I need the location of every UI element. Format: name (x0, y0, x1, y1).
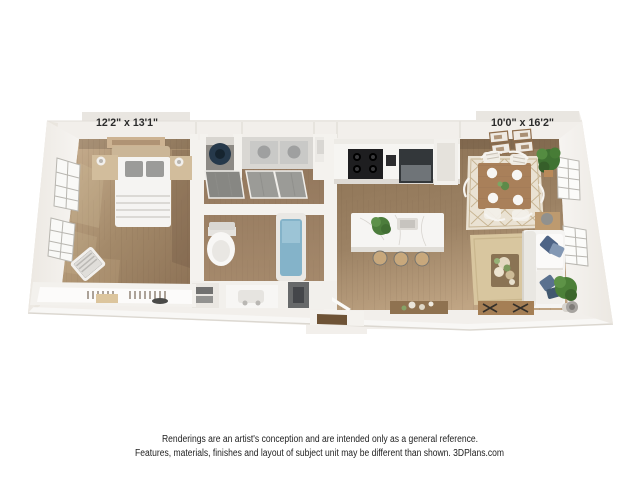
svg-text:Renderings are an artist's con: Renderings are an artist's conception an… (162, 434, 478, 445)
svg-text:10'0" x 16'2": 10'0" x 16'2" (491, 117, 554, 129)
svg-text:Features, materials, finishes: Features, materials, finishes and layout… (135, 448, 504, 459)
svg-text:12'2" x 13'1": 12'2" x 13'1" (96, 117, 158, 129)
